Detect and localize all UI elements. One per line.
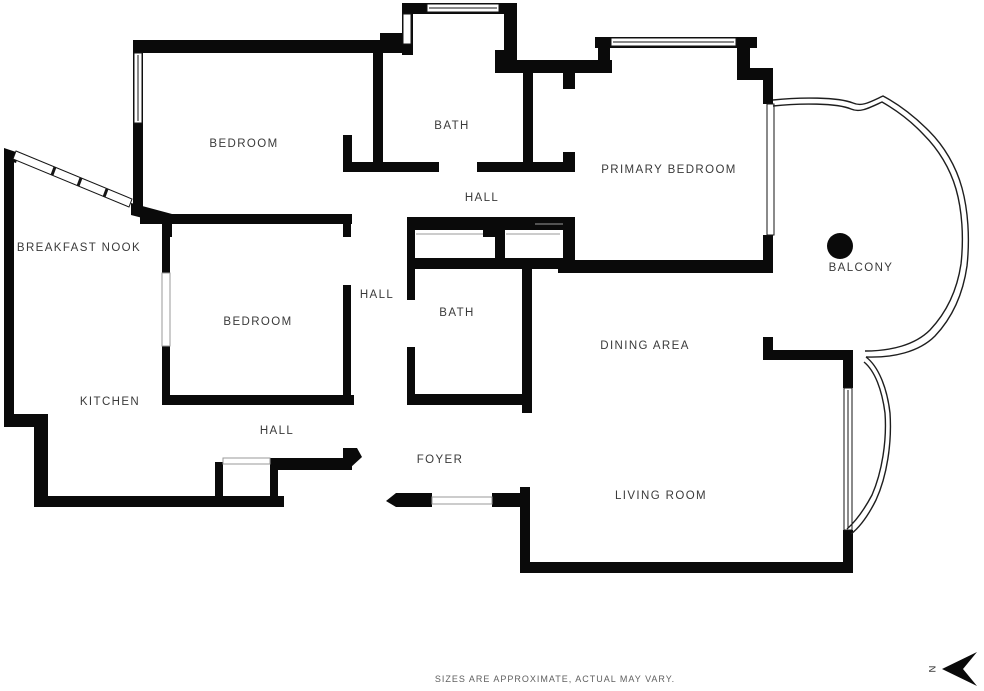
wall-segment xyxy=(162,395,354,405)
room-label-bedroom-nw: BEDROOM xyxy=(209,138,278,150)
wall-segment xyxy=(763,350,853,360)
wall-segment xyxy=(407,258,573,269)
wall-segment xyxy=(520,562,853,573)
wall-segment xyxy=(563,73,575,89)
wall-segment xyxy=(343,214,351,237)
wall-segment xyxy=(270,458,352,470)
wall-segment xyxy=(140,214,352,224)
balcony-curve-inner xyxy=(773,102,962,351)
room-label-foyer: FOYER xyxy=(417,454,464,466)
room-label-breakfast-nook: BREAKFAST NOOK xyxy=(17,242,141,254)
balcony-column xyxy=(827,233,853,259)
wall-segment xyxy=(407,394,532,405)
opening-sill xyxy=(223,458,270,464)
room-label-hall-lower: HALL xyxy=(260,425,294,437)
wall-segment xyxy=(407,347,415,397)
floor-plan-page: BEDROOM BATH PRIMARY BEDROOM HALL BREAKF… xyxy=(0,0,984,691)
window xyxy=(767,104,774,235)
wall-segment xyxy=(763,235,773,263)
wall-segment xyxy=(162,346,170,398)
wall-segment xyxy=(523,72,533,172)
wall-segment xyxy=(492,493,523,507)
wall-segment xyxy=(34,496,284,507)
room-label-dining-area: DINING AREA xyxy=(600,340,690,352)
wall-segment xyxy=(763,78,773,104)
opening-sill xyxy=(432,497,492,504)
room-label-bedroom-mid: BEDROOM xyxy=(223,316,292,328)
north-label: N xyxy=(926,666,937,673)
room-label-hall-mid: HALL xyxy=(360,289,394,301)
walls xyxy=(4,3,853,573)
wall-segment xyxy=(843,350,853,388)
wall-segment xyxy=(520,487,530,573)
wall-segment xyxy=(162,233,170,273)
floor-plan: BEDROOM BATH PRIMARY BEDROOM HALL BREAKF… xyxy=(0,0,984,691)
wall-segment xyxy=(373,53,383,165)
room-label-kitchen: KITCHEN xyxy=(80,396,140,408)
room-label-living-room: LIVING ROOM xyxy=(615,490,707,502)
wall-segment xyxy=(483,230,497,237)
wall-segment xyxy=(843,530,853,573)
room-label-hall-upper: HALL xyxy=(465,192,499,204)
compass: N xyxy=(926,652,977,686)
wall-segment xyxy=(495,60,612,73)
wall-segment xyxy=(386,493,432,507)
wall-segment xyxy=(558,260,773,273)
wall-segment xyxy=(407,220,415,300)
wall-segment xyxy=(215,462,223,498)
wall-segment xyxy=(495,230,505,262)
balcony-outline xyxy=(773,96,968,534)
wall-segment xyxy=(343,285,351,398)
room-label-bath-top: BATH xyxy=(434,120,469,132)
wall-segment xyxy=(133,40,392,53)
wall-segment xyxy=(4,152,14,422)
wall-segment xyxy=(343,162,439,172)
window-angled xyxy=(13,151,132,207)
window-faint xyxy=(162,273,170,346)
wall-segment xyxy=(522,268,532,413)
window xyxy=(403,14,411,44)
room-label-balcony: BALCONY xyxy=(829,262,894,274)
room-label-primary-bedroom: PRIMARY BEDROOM xyxy=(601,164,737,176)
room-labels: BEDROOM BATH PRIMARY BEDROOM HALL BREAKF… xyxy=(17,120,893,502)
footer-disclaimer: SIZES ARE APPROXIMATE, ACTUAL MAY VARY. xyxy=(435,674,675,684)
room-label-bath-mid: BATH xyxy=(439,307,474,319)
wall-segment xyxy=(34,420,48,498)
north-arrow-icon xyxy=(942,652,977,686)
